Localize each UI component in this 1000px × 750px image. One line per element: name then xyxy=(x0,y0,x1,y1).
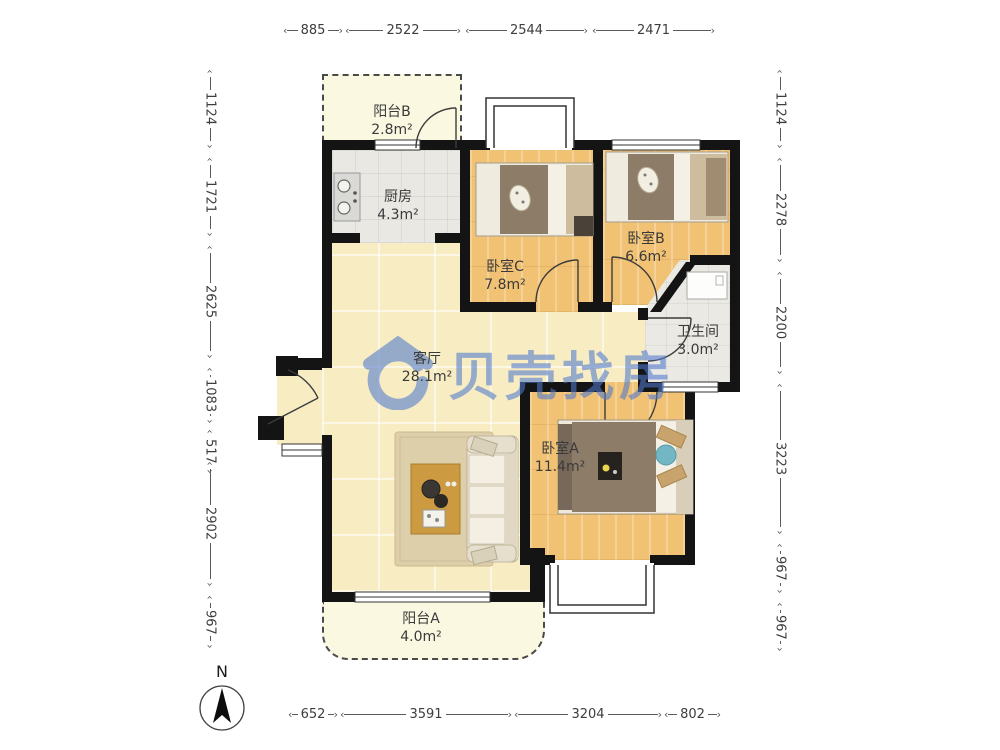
dimension-bottom-1: ‹ 652 › xyxy=(288,706,338,722)
dimension-top-2: ‹ 2522 › xyxy=(345,22,461,38)
room-name: 客厅 xyxy=(379,350,475,368)
room-area: 4.3m² xyxy=(350,206,446,224)
dimension-value: 802 xyxy=(677,707,708,722)
arrow-down-icon: › xyxy=(775,144,786,148)
arrow-right-icon: › xyxy=(584,25,588,36)
room-area: 4.0m² xyxy=(373,628,469,646)
dimension-left-4: ‹ 1083 › xyxy=(202,364,218,424)
dimension-value: 2278 xyxy=(773,191,788,228)
arrow-up-icon: ‹ xyxy=(205,69,216,73)
dimension-top-4: ‹ 2471 › xyxy=(592,22,715,38)
room-name: 卧室A xyxy=(512,440,608,458)
room-label-bedroom-a: 卧室A 11.4m² xyxy=(512,440,608,476)
dimension-bottom-3: ‹ 3204 › xyxy=(514,706,662,722)
dimension-bottom-4: ‹ 802 › xyxy=(664,706,721,722)
dimension-value: 3223 xyxy=(773,440,788,477)
arrow-down-icon: › xyxy=(775,589,786,593)
room-name: 卫生间 xyxy=(650,323,746,341)
dimension-right-6: ‹ 967 › xyxy=(772,599,788,655)
window-entry xyxy=(282,444,322,456)
room-label-bathroom: 卫生间 3.0m² xyxy=(650,323,746,359)
compass: N xyxy=(196,662,248,738)
arrow-down-icon: › xyxy=(205,644,216,648)
compass-icon xyxy=(196,682,248,734)
dimension-left-2: ‹ 1721 › xyxy=(202,154,218,240)
dimension-left-3: ‹ 2625 › xyxy=(202,242,218,362)
dimension-value: 967 xyxy=(773,554,788,583)
dimension-left-5: ‹ 517 › xyxy=(202,426,218,456)
arrow-right-icon: › xyxy=(334,709,338,720)
arrow-up-icon: ‹ xyxy=(205,429,216,433)
arrow-up-icon: ‹ xyxy=(775,543,786,547)
dimension-value: 2625 xyxy=(203,283,218,320)
arrow-right-icon: › xyxy=(457,25,461,36)
dimension-right-1: ‹ 1124 › xyxy=(772,66,788,152)
room-area: 11.4m² xyxy=(512,458,608,476)
dimension-top-3: ‹ 2544 › xyxy=(465,22,588,38)
arrow-right-icon: › xyxy=(717,709,721,720)
dimension-right-2: ‹ 2278 › xyxy=(772,154,788,266)
room-name: 厨房 xyxy=(350,188,446,206)
room-area: 7.8m² xyxy=(457,276,553,294)
arrow-down-icon: › xyxy=(775,647,786,651)
dimension-top-1: ‹ 885 › xyxy=(283,22,343,38)
room-area: 28.1m² xyxy=(379,368,475,386)
window-bedroom-b xyxy=(612,140,700,150)
arrow-down-icon: › xyxy=(205,354,216,358)
arrow-up-icon: ‹ xyxy=(775,271,786,275)
arrow-up-icon: ‹ xyxy=(205,595,216,599)
room-label-bedroom-c: 卧室C 7.8m² xyxy=(457,258,553,294)
dimension-value: 967 xyxy=(773,613,788,642)
dimension-value: 1124 xyxy=(203,90,218,127)
room-area: 6.6m² xyxy=(598,248,694,266)
room-name: 阳台B xyxy=(344,103,440,121)
dimension-value: 885 xyxy=(298,23,329,38)
dimension-right-5: ‹ 967 › xyxy=(772,540,788,597)
dimension-left-7: ‹ 967 › xyxy=(202,592,218,652)
dimension-left-6: ‹ 2902 › xyxy=(202,458,218,590)
dimension-value: 652 xyxy=(298,707,329,722)
dimension-bottom-2: ‹ 3591 › xyxy=(340,706,512,722)
room-name: 卧室B xyxy=(598,230,694,248)
arrow-down-icon: › xyxy=(205,419,216,423)
room-label-living-room: 客厅 28.1m² xyxy=(379,350,475,386)
room-area: 3.0m² xyxy=(650,341,746,359)
arrow-down-icon: › xyxy=(775,530,786,534)
arrow-right-icon: › xyxy=(339,25,343,36)
dimension-value: 2200 xyxy=(773,304,788,341)
arrow-up-icon: ‹ xyxy=(775,602,786,606)
arrow-right-icon: › xyxy=(658,709,662,720)
dimension-value: 967 xyxy=(203,608,218,637)
room-entry-vestibule xyxy=(277,368,322,445)
room-name: 卧室C xyxy=(457,258,553,276)
arrow-down-icon: › xyxy=(775,258,786,262)
dimension-right-4: ‹ 3223 › xyxy=(772,380,788,538)
room-label-balcony-b: 阳台B 2.8m² xyxy=(344,103,440,139)
arrow-down-icon: › xyxy=(205,232,216,236)
arrow-down-icon: › xyxy=(205,144,216,148)
dimension-value: 1083 xyxy=(203,377,218,414)
room-label-kitchen: 厨房 4.3m² xyxy=(350,188,446,224)
window-living-balcony xyxy=(355,592,490,602)
arrow-down-icon: › xyxy=(775,370,786,374)
arrow-up-icon: ‹ xyxy=(205,367,216,371)
room-label-balcony-a: 阳台A 4.0m² xyxy=(373,610,469,646)
dimension-value: 2471 xyxy=(634,23,673,38)
dimension-value: 2902 xyxy=(203,505,218,542)
room-label-bedroom-b: 卧室B 6.6m² xyxy=(598,230,694,266)
arrow-up-icon: ‹ xyxy=(205,157,216,161)
compass-north-label: N xyxy=(196,662,248,681)
arrow-up-icon: ‹ xyxy=(205,461,216,465)
dimension-right-3: ‹ 2200 › xyxy=(772,268,788,378)
arrow-up-icon: ‹ xyxy=(775,69,786,73)
dimension-value: 2522 xyxy=(383,23,422,38)
arrow-down-icon: › xyxy=(205,582,216,586)
arrow-up-icon: ‹ xyxy=(775,157,786,161)
room-area: 2.8m² xyxy=(344,121,440,139)
dimension-left-1: ‹ 1124 › xyxy=(202,66,218,152)
dimension-value: 1721 xyxy=(203,178,218,215)
dimension-value: 1124 xyxy=(773,90,788,127)
arrow-up-icon: ‹ xyxy=(205,245,216,249)
arrow-up-icon: ‹ xyxy=(775,383,786,387)
bay-window-bedroom-a xyxy=(550,563,654,613)
dimension-value: 3591 xyxy=(406,707,445,722)
dimension-value: 3204 xyxy=(568,707,607,722)
arrow-right-icon: › xyxy=(711,25,715,36)
room-name: 阳台A xyxy=(373,610,469,628)
dimension-value: 2544 xyxy=(507,23,546,38)
bay-window-bedroom-c xyxy=(486,98,574,148)
arrow-right-icon: › xyxy=(508,709,512,720)
